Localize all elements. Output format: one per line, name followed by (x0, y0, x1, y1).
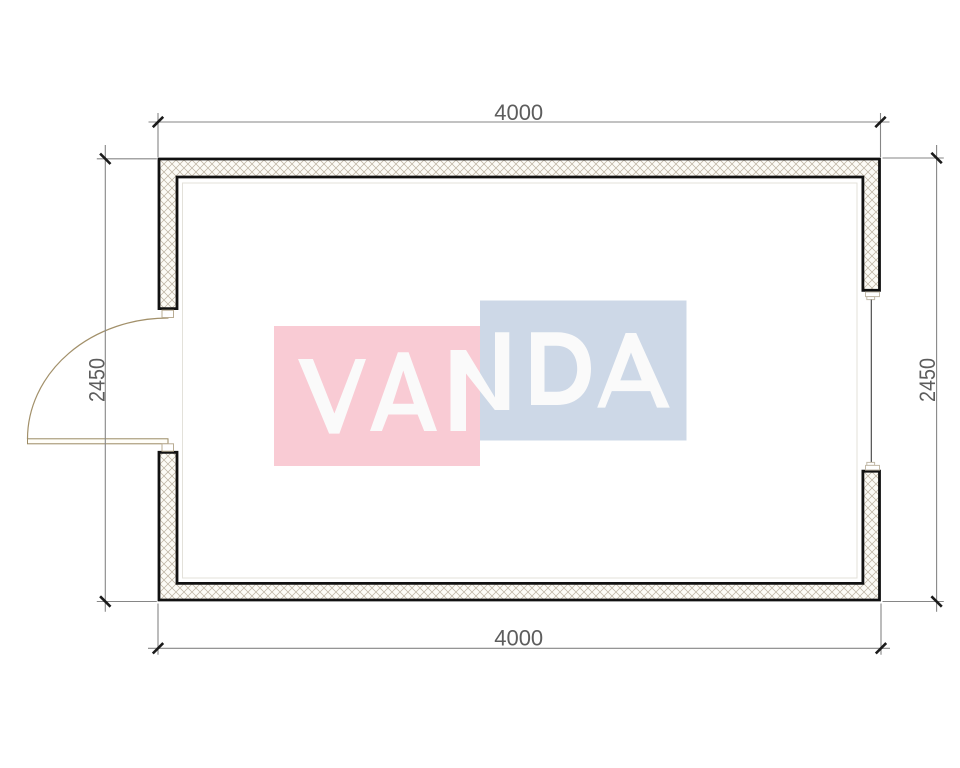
svg-text:2450: 2450 (85, 358, 109, 402)
svg-text:2450: 2450 (916, 358, 940, 402)
svg-text:4000: 4000 (494, 100, 543, 125)
svg-text:4000: 4000 (494, 626, 543, 651)
